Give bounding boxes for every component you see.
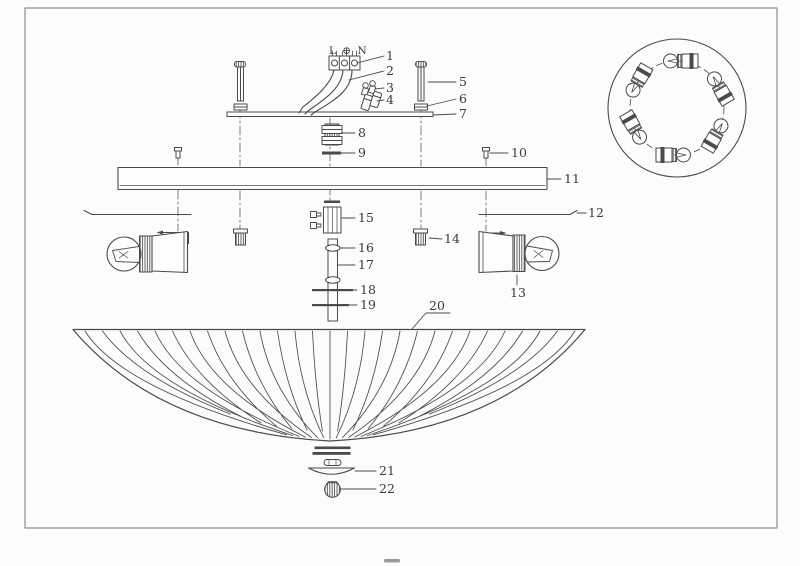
finial-knob-22 [325, 482, 341, 498]
part-label-1: 1 [386, 48, 394, 63]
washer-9 [322, 152, 341, 155]
finial-cap-21 [309, 468, 355, 474]
threaded-nipple-8 [322, 124, 342, 145]
diagram-page: L ⊕ N 1 2 3 4 5 6 7 8 9 10 11 12 13 14 1… [0, 0, 800, 566]
washer-19 [312, 304, 349, 306]
part-label-6: 6 [459, 91, 467, 106]
lamp-socket-left [107, 232, 188, 273]
ring-holder [704, 69, 735, 107]
part-label-16: 16 [358, 240, 374, 255]
ring-top-view [608, 39, 746, 177]
part-label-9: 9 [358, 145, 366, 160]
locknut-14 [414, 229, 428, 245]
part-label-13: 13 [510, 285, 526, 300]
screw-long-left [234, 62, 247, 111]
supply-wires [299, 70, 352, 115]
ceiling-strip [227, 112, 433, 117]
ring-holder [623, 62, 654, 100]
part-label-4: 4 [386, 92, 394, 107]
part-label-17: 17 [358, 257, 374, 272]
dome-flutes [85, 331, 575, 439]
bracket-screw-10 [483, 148, 490, 159]
part-label-14: 14 [444, 231, 460, 246]
part-label-7: 7 [459, 106, 467, 121]
page-mark [384, 559, 400, 563]
mounting-bar-11 [118, 168, 547, 190]
ring-holder [656, 147, 691, 163]
lamp-socket-right-13 [479, 232, 559, 273]
part-label-2: 2 [386, 63, 394, 78]
part-label-5: 5 [459, 74, 467, 89]
part-label-19: 19 [360, 297, 376, 312]
screw-long-right-5 [416, 62, 427, 102]
center-column [311, 201, 354, 322]
nut-6 [415, 104, 428, 110]
terminal-marking: L ⊕ N [329, 45, 368, 57]
ring-holder [700, 116, 731, 154]
washer-18 [312, 289, 353, 291]
part-label-18: 18 [360, 282, 376, 297]
part-label-10: 10 [511, 145, 527, 160]
drawing-border [25, 8, 777, 528]
part-label-21: 21 [379, 463, 395, 478]
part-label-11: 11 [564, 171, 580, 186]
bracket-screw-left [175, 148, 182, 159]
ring-holders [619, 53, 735, 163]
part-label-12: 12 [588, 205, 604, 220]
locknut-left [234, 229, 248, 245]
part-label-8: 8 [358, 125, 366, 140]
ring-nut-16 [326, 245, 340, 251]
part-label-20: 20 [429, 298, 445, 313]
ring-holder [619, 109, 650, 147]
ring-holder [664, 53, 699, 69]
part-label-15: 15 [358, 210, 374, 225]
exploded-diagram-svg: L ⊕ N 1 2 3 4 5 6 7 8 9 10 11 12 13 14 1… [0, 0, 800, 566]
bulb-right [525, 237, 559, 271]
glass-dome-20 [73, 330, 585, 442]
finial-stack [309, 447, 355, 498]
part-label-22: 22 [379, 481, 395, 496]
